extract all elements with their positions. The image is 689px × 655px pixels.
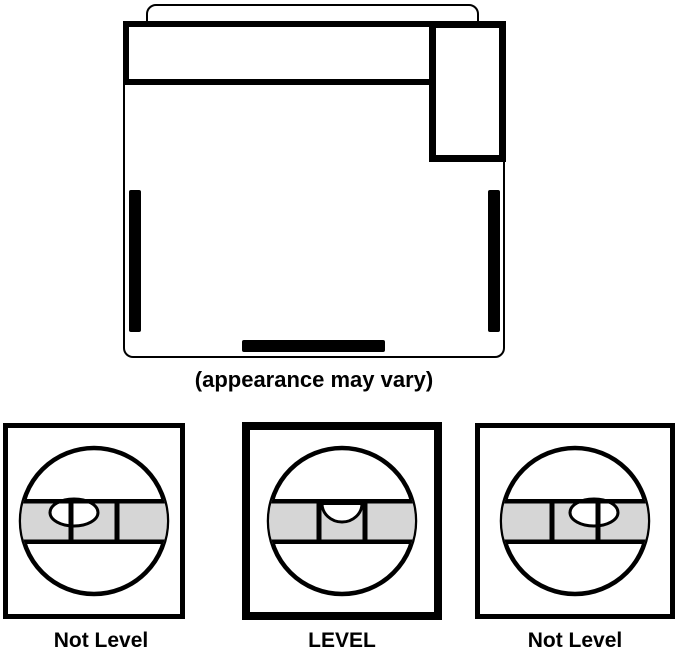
appliance-base-vent-bar <box>242 340 385 352</box>
level-label-not-level-left: Not Level <box>3 629 199 653</box>
appearance-caption: (appearance may vary) <box>123 367 505 393</box>
appliance-right-vent-bar <box>488 190 500 332</box>
level-label-not-level-right: Not Level <box>475 629 675 653</box>
level-indicator-not-level-right <box>475 423 675 619</box>
appliance-control-panel <box>123 21 434 85</box>
level-indicator-level <box>242 422 442 620</box>
bubble-level-icon <box>489 435 661 607</box>
level-indicator-not-level-left <box>3 423 185 619</box>
bubble-level-icon <box>8 435 180 607</box>
bubble-level-icon <box>256 435 428 607</box>
leveling-instruction-figure: (appearance may vary) <box>0 0 689 655</box>
level-label-level: LEVEL <box>242 629 442 653</box>
appliance-dispenser-drawer <box>429 21 506 162</box>
appliance-left-vent-bar <box>129 190 141 332</box>
